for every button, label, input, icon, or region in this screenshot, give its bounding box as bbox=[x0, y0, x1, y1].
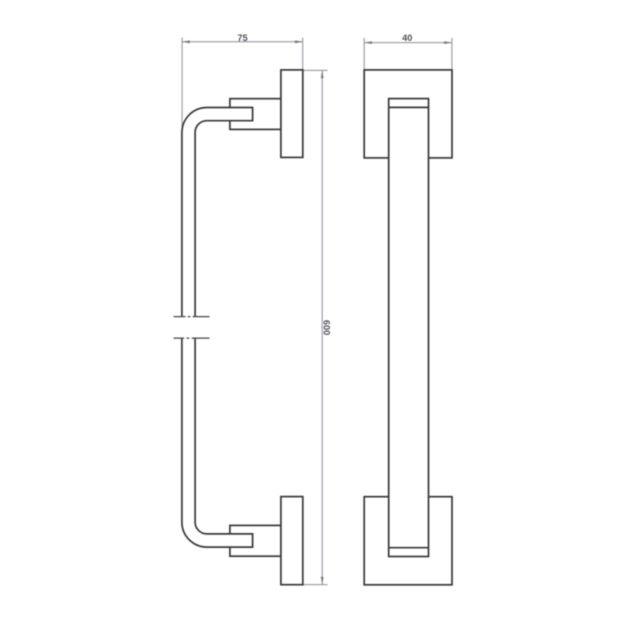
svg-text:40: 40 bbox=[402, 33, 412, 43]
svg-text:75: 75 bbox=[237, 33, 247, 43]
svg-text:600: 600 bbox=[321, 320, 331, 335]
